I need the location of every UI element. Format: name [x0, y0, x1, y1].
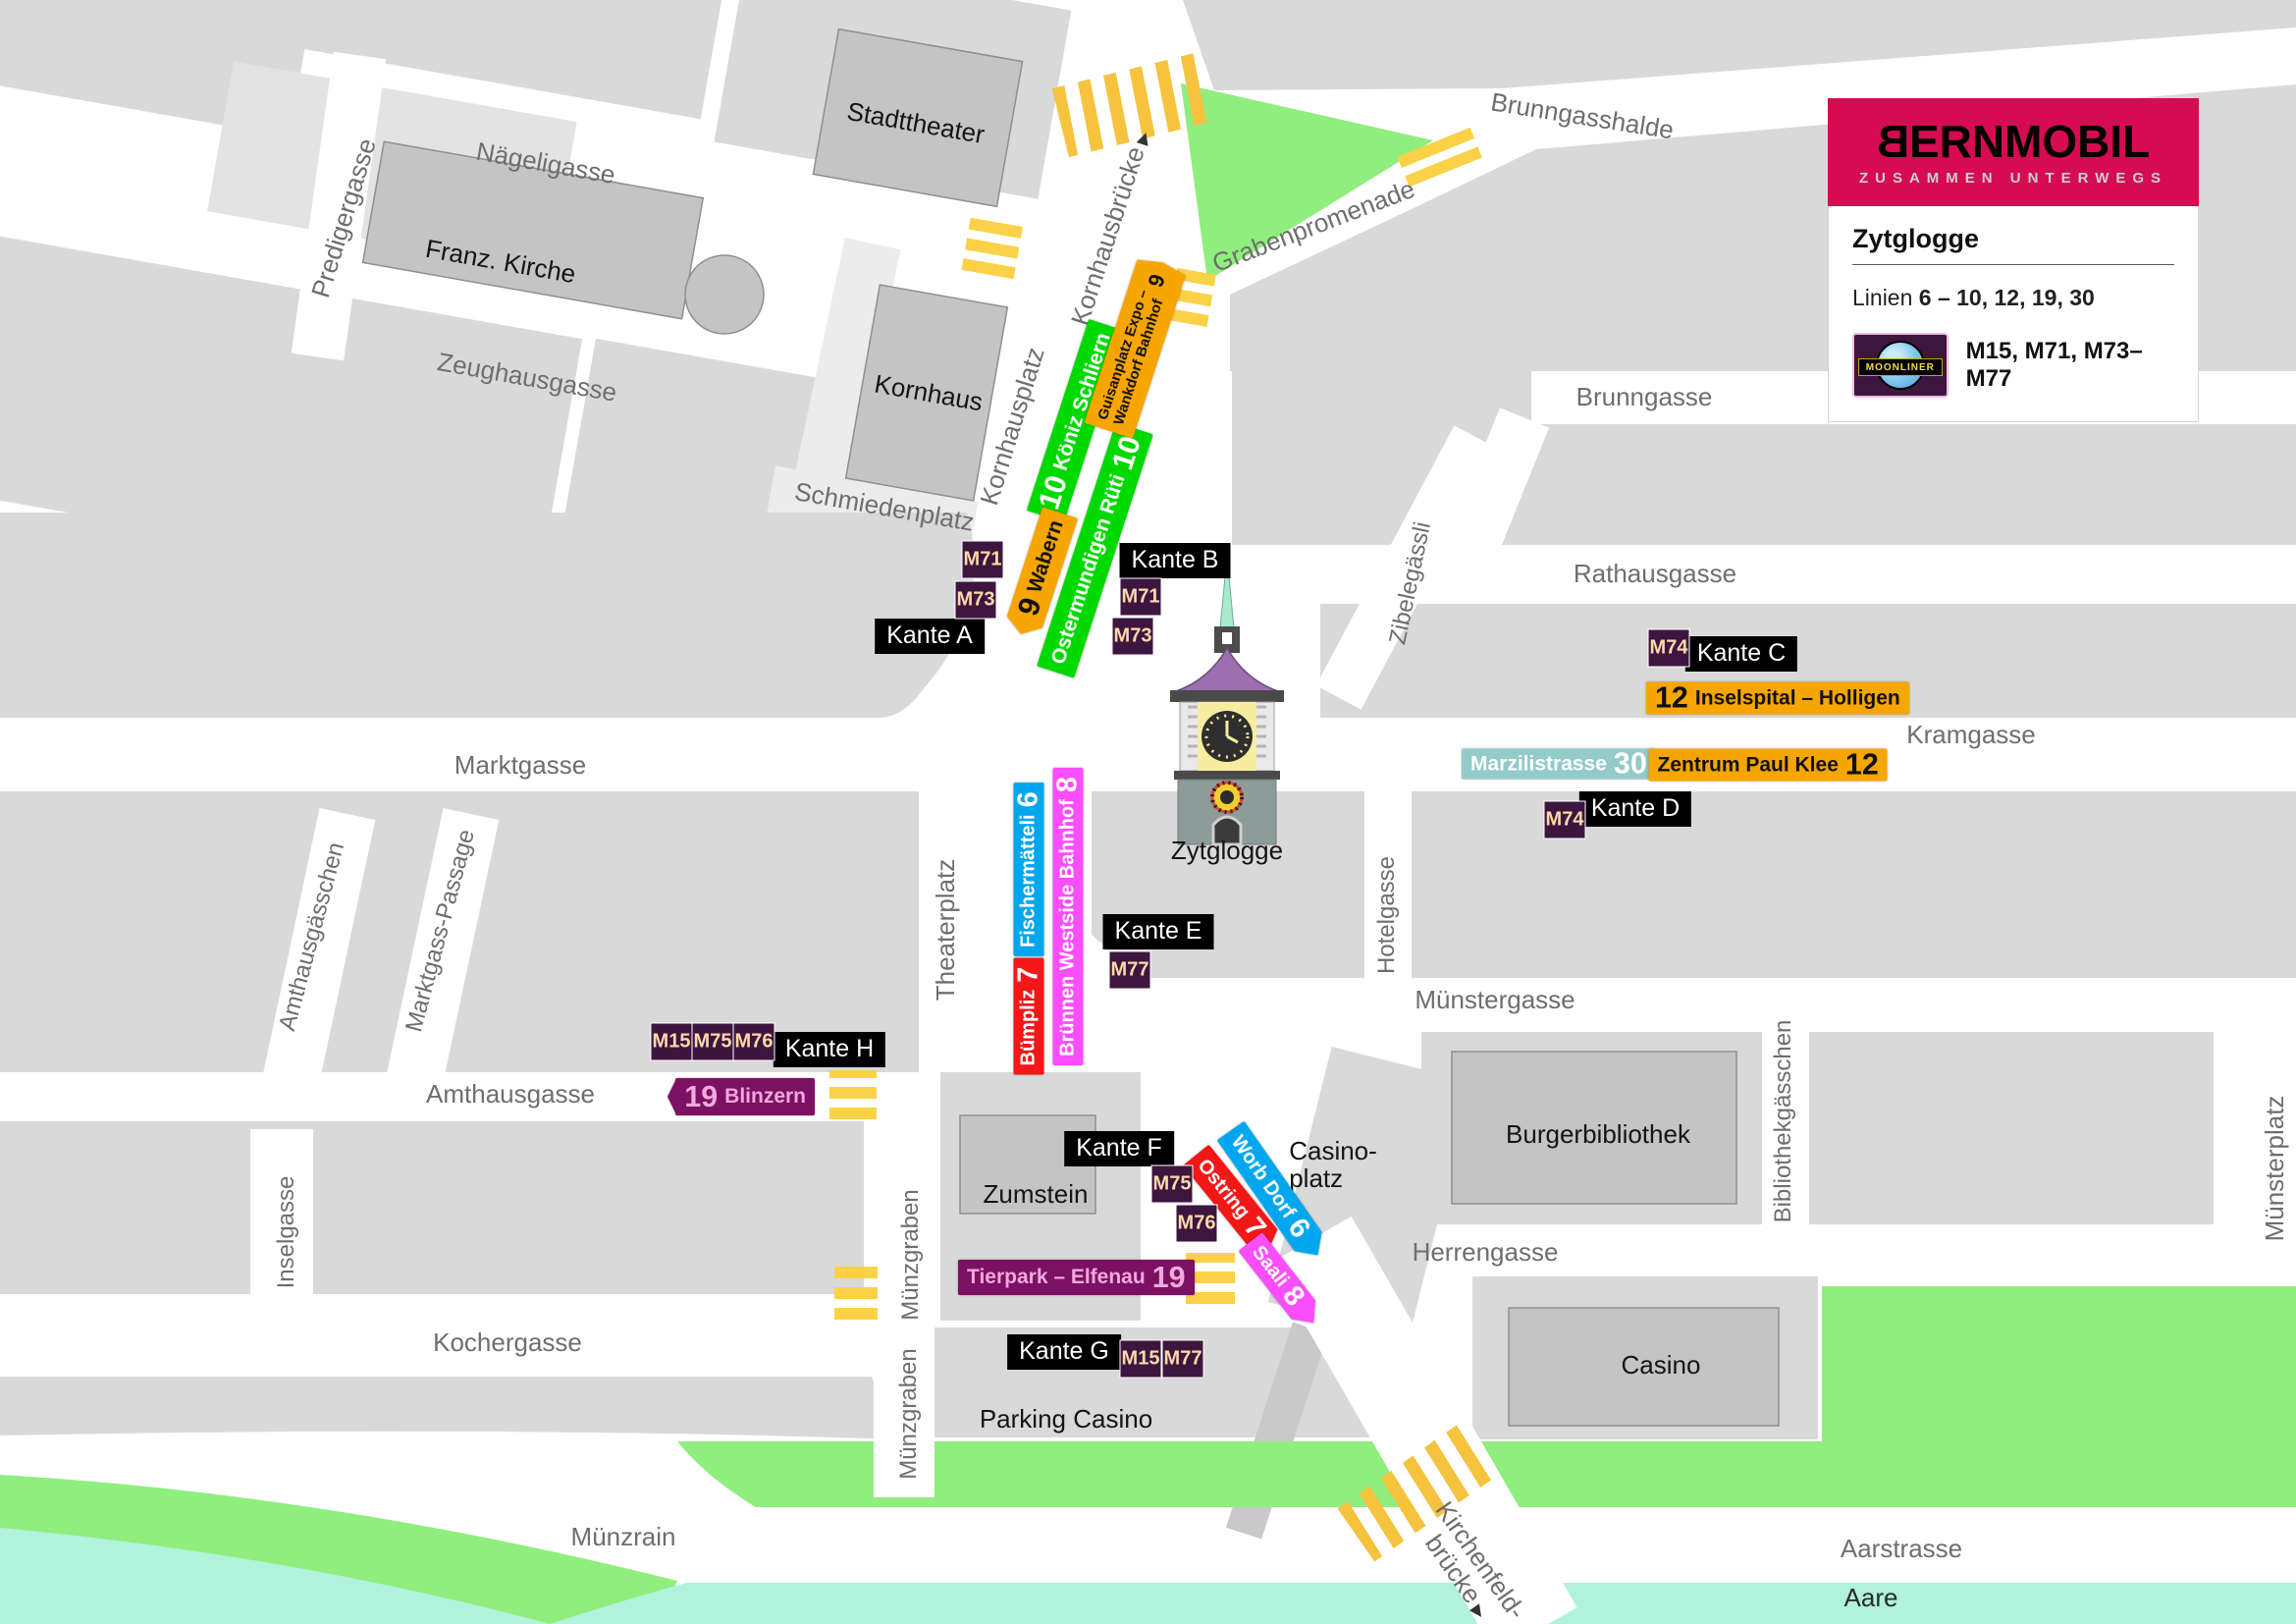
kante-badge: Kante C — [1685, 636, 1797, 672]
line-8-bruennen: Brünnen Westside Bahnhof8 — [1053, 794, 1084, 1065]
line-12-paul-klee: Zentrum Paul Klee12 — [1649, 749, 1868, 782]
moonliner-badge: M77 — [1162, 1340, 1204, 1379]
street-label: Aarstrasse — [1841, 1535, 1962, 1562]
moonliner-badge: M75 — [1151, 1165, 1194, 1204]
moonliner-badge: M76 — [733, 1023, 775, 1061]
lines-summary: Linien 6 – 10, 12, 19, 30 — [1852, 285, 2174, 311]
crosswalk — [829, 1070, 877, 1119]
moonliner-badge: M15 — [1120, 1340, 1162, 1379]
street-label: Inselgasse — [274, 1176, 299, 1289]
legend-divider — [1852, 264, 2174, 265]
street-label: Münzgraben — [898, 1189, 924, 1320]
moonliner-wordmark: MOONLINER — [1858, 358, 1943, 376]
line-6-fischermaetteli: Fischermätteli6 — [1014, 787, 1044, 956]
crosswalk — [961, 214, 1023, 279]
kante-badge: Kante E — [1103, 914, 1214, 949]
moonliner-logo-icon: MOONLINER — [1852, 333, 1949, 398]
moonliner-badge: M71 — [1120, 578, 1162, 617]
direction-arrow-icon: ▶ — [1468, 1601, 1489, 1621]
street-label: Münzgraben — [896, 1348, 922, 1479]
place-label: Casino — [1622, 1351, 1701, 1379]
line-19-blinzern: 19Blinzern — [667, 1078, 815, 1115]
moonliner-badge: M73 — [955, 581, 997, 620]
moonliner-badge: M71 — [962, 541, 1004, 579]
street-label: Herrengasse — [1413, 1238, 1559, 1266]
kante-badge: Kante A — [875, 619, 985, 654]
zytglogge-tower — [1158, 550, 1296, 854]
street-label: Theaterplatz — [932, 859, 959, 1001]
lines-label: Linien — [1852, 285, 1912, 310]
street-label: Kramgasse — [1906, 721, 2036, 748]
street-label: Amthausgasse — [426, 1080, 595, 1108]
moonliner-badge: M74 — [1648, 629, 1690, 668]
place-label: Casino-platz — [1289, 1137, 1377, 1192]
street-label: Brunngasse — [1576, 383, 1713, 410]
lines-value: 6 – 10, 12, 19, 30 — [1919, 285, 2095, 310]
moonliner-badge: M73 — [1112, 618, 1154, 656]
street-label: Kochergasse — [433, 1328, 582, 1356]
moonliner-lines: M15, M71, M73–M77 — [1966, 338, 2174, 393]
place-label: Zytglogge — [1171, 837, 1283, 864]
legend-brand-header: BERNMOBIL ZUSAMMEN UNTERWEGS — [1828, 98, 2199, 206]
line-12-inselspital: 12Inselspital – Holligen — [1647, 682, 1895, 715]
line-30-marzilistrasse: Marzilistrasse30 — [1462, 749, 1646, 780]
map-canvas: BERNMOBIL ZUSAMMEN UNTERWEGS Zytglogge L… — [0, 0, 2296, 1624]
kante-badge: Kante H — [774, 1032, 885, 1067]
line-19-tierpark: Tierpark – Elfenau19 — [958, 1260, 1176, 1295]
moonliner-badge: M15 — [651, 1023, 693, 1061]
kante-badge: Kante D — [1579, 791, 1691, 827]
street-label: Münsterplatz — [2261, 1096, 2288, 1242]
street-label: Bibliothekgässchen — [1771, 1020, 1796, 1223]
street-label: Rathausgasse — [1574, 560, 1736, 587]
street-label: Münstergasse — [1415, 986, 1575, 1013]
kante-badge: Kante B — [1120, 543, 1231, 578]
place-label: Zumstein — [984, 1180, 1089, 1208]
street-label: Marktgasse — [454, 751, 586, 779]
moonliner-badge: M75 — [692, 1023, 734, 1061]
place-label: Burgerbibliothek — [1506, 1120, 1690, 1148]
kante-badge: Kante G — [1007, 1334, 1121, 1370]
crosswalk — [834, 1261, 878, 1320]
moonliner-row: MOONLINER M15, M71, M73–M77 — [1852, 333, 2174, 398]
legend-panel: BERNMOBIL ZUSAMMEN UNTERWEGS Zytglogge L… — [1828, 98, 2199, 422]
street-label: Hotelgasse — [1374, 856, 1400, 974]
street-label: Münzrain — [571, 1523, 676, 1550]
street-label: Aare — [1844, 1584, 1898, 1611]
arrow-tip-icon — [667, 1078, 676, 1115]
kante-badge: Kante F — [1064, 1131, 1174, 1166]
bernmobil-logo: BERNMOBIL — [1877, 119, 2151, 164]
legend-body: Zytglogge Linien 6 – 10, 12, 19, 30 MOON… — [1828, 206, 2199, 422]
line-7-buempliz: Bümpliz7 — [1014, 962, 1044, 1075]
place-label: Parking Casino — [980, 1405, 1152, 1433]
moonliner-badge: M77 — [1109, 951, 1151, 990]
moonliner-badge: M74 — [1544, 801, 1586, 839]
brand-tagline: ZUSAMMEN UNTERWEGS — [1859, 170, 2167, 187]
moonliner-badge: M76 — [1176, 1205, 1218, 1243]
stop-name: Zytglogge — [1852, 224, 2174, 254]
